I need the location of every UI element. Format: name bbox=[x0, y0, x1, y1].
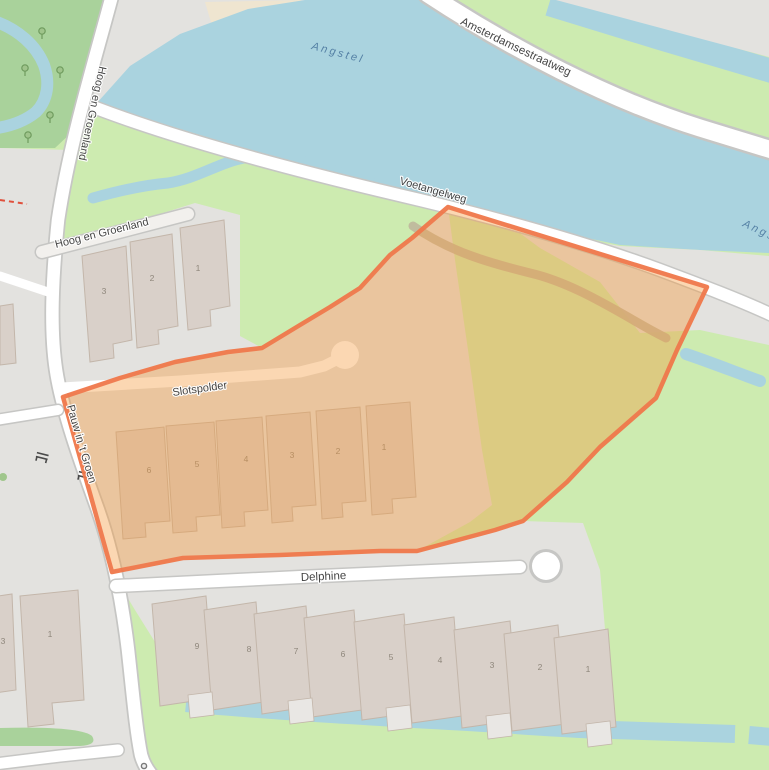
house-number: 9 bbox=[195, 641, 200, 651]
house-number: 5 bbox=[389, 652, 394, 662]
house-number: 6 bbox=[341, 649, 346, 659]
house-number: 1 bbox=[48, 629, 53, 639]
house-number: 3 bbox=[490, 660, 495, 670]
house-number: 2 bbox=[538, 662, 543, 672]
bollard-icon bbox=[141, 763, 146, 768]
map-canvas[interactable]: 654321 Hoog en Groenland Hoog en Groenla… bbox=[0, 0, 769, 770]
delphine-cul-de-sac bbox=[532, 552, 560, 580]
map-svg: 654321 Hoog en Groenland Hoog en Groenla… bbox=[0, 0, 769, 770]
house-number: 1 bbox=[586, 664, 591, 674]
house-number: 4 bbox=[438, 655, 443, 665]
house-number: 8 bbox=[247, 644, 252, 654]
house-number: 1 bbox=[196, 263, 201, 273]
channel-south-east bbox=[749, 735, 769, 737]
street-label-delphine: Delphine bbox=[301, 570, 347, 584]
house-number: 3 bbox=[102, 286, 107, 296]
house-number: 2 bbox=[150, 273, 155, 283]
house-number: 7 bbox=[294, 646, 299, 656]
house-number: 3 bbox=[1, 636, 6, 646]
